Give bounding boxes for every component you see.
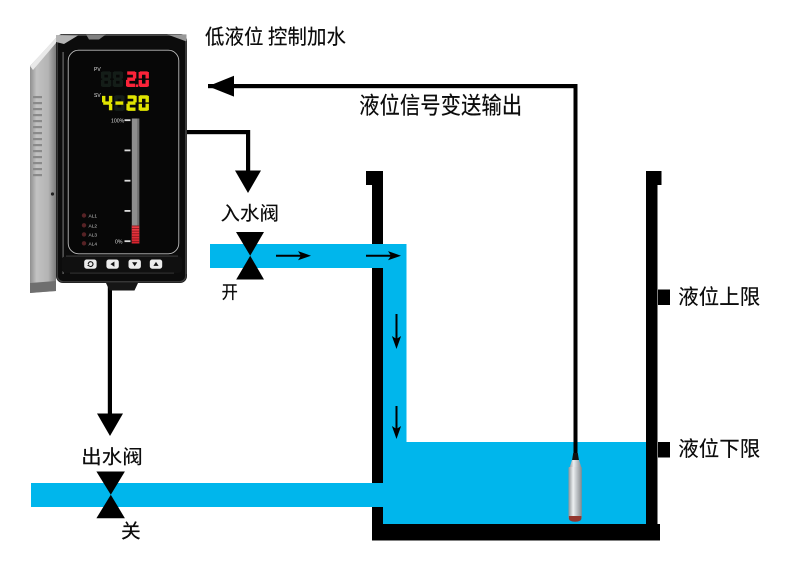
svg-text:AL4: AL4 [89,241,98,247]
svg-text:100%: 100% [111,119,125,125]
svg-text:0%: 0% [115,240,123,246]
svg-text:PV: PV [94,67,101,73]
svg-text:AL3: AL3 [89,232,98,238]
svg-text:AL1: AL1 [89,214,98,220]
svg-text:AL2: AL2 [89,223,98,229]
svg-text:SV: SV [94,93,101,99]
